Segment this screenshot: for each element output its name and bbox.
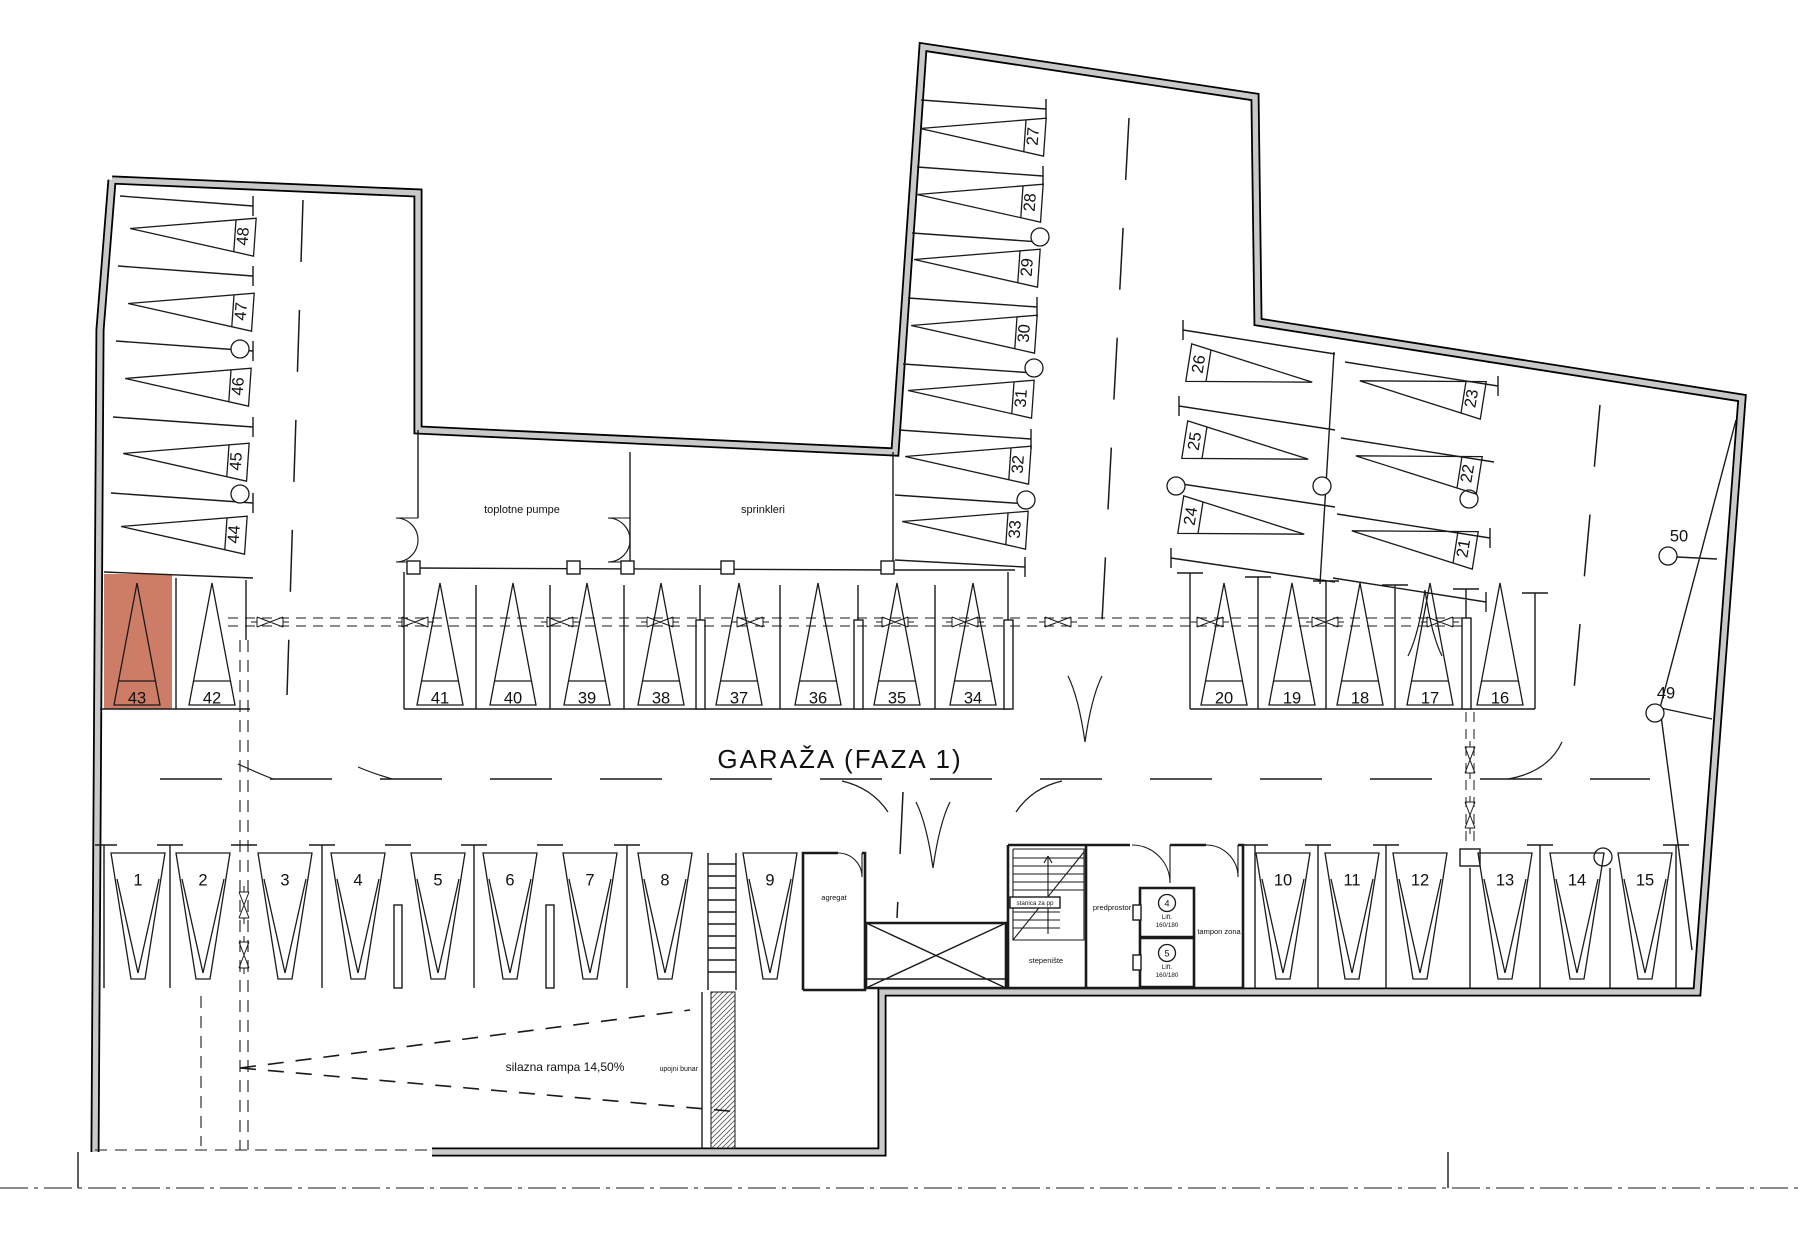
parking-space-36: 36 <box>795 583 841 707</box>
soak-well-strip <box>711 992 735 1148</box>
parking-space-14: 14 <box>1550 853 1604 979</box>
room-label-tampon-zona: tampon zona <box>1197 927 1241 936</box>
parking-space-6: 6 <box>483 853 537 979</box>
parking-space-13: 13 <box>1478 853 1532 979</box>
space-number: 21 <box>1453 538 1474 559</box>
space-number: 2 <box>198 871 207 889</box>
exterior-wall-outline <box>95 47 1742 1152</box>
parking-space-22: 22 <box>1353 437 1482 494</box>
parking-space-2: 2 <box>176 853 230 979</box>
room-label-stepeniste: stepenište <box>1029 956 1063 965</box>
space-number: 45 <box>227 452 246 472</box>
space-number: 29 <box>1018 258 1037 278</box>
parking-space-26: 26 <box>1186 344 1315 401</box>
lift-4-label: Lift. <box>1162 914 1172 921</box>
space-number: 49 <box>1657 684 1675 702</box>
parking-space-31: 31 <box>907 372 1034 419</box>
stair-treads <box>1013 849 1084 940</box>
room-label-sprinkleri: sprinkleri <box>741 504 785 516</box>
parking-space-20: 20 <box>1201 583 1247 707</box>
parking-space-30: 30 <box>910 307 1037 354</box>
parking-space-5: 5 <box>411 853 465 979</box>
space-number: 37 <box>730 689 748 707</box>
lift-5-number: 5 <box>1164 949 1169 959</box>
space-number: 43 <box>128 689 146 707</box>
space-number: 11 <box>1343 871 1360 889</box>
space-number: 27 <box>1024 127 1043 147</box>
parking-space-33: 33 <box>901 503 1028 550</box>
parking-space-25: 25 <box>1182 421 1311 478</box>
entrance-gate-x <box>866 923 1006 988</box>
space-number: 5 <box>433 871 442 889</box>
space-number: 38 <box>652 689 670 707</box>
parking-space-44: 44 <box>120 508 247 555</box>
space-number: 7 <box>585 871 594 889</box>
space-number: 40 <box>504 689 522 707</box>
plan-title: GARAŽA (FAZA 1) <box>717 744 962 774</box>
parking-space-34: 34 <box>950 583 996 707</box>
drive-aisle-centerlines <box>160 118 1650 918</box>
lift-5-size: 160/180 <box>1156 972 1179 979</box>
parking-space-27: 27 <box>919 110 1046 157</box>
space-number: 42 <box>203 689 221 707</box>
parking-space-35: 35 <box>874 583 920 707</box>
stair-lift-core-walls <box>803 845 1243 990</box>
space-number: 30 <box>1015 324 1034 344</box>
space-number: 20 <box>1215 689 1233 707</box>
space-number: 25 <box>1185 431 1206 452</box>
parking-space-3: 3 <box>258 853 312 979</box>
room-label-toplotne-pumpe: toplotne pumpe <box>484 504 560 516</box>
space-number: 3 <box>280 871 289 889</box>
parking-space-38: 38 <box>638 583 684 707</box>
parking-space-32: 32 <box>904 438 1031 485</box>
space-number: 50 <box>1670 527 1688 545</box>
space-number: 12 <box>1411 871 1429 889</box>
parking-space-24: 24 <box>1178 496 1307 553</box>
parking-space-1: 1 <box>111 853 165 979</box>
lift-4-number: 4 <box>1164 899 1169 909</box>
garage-floor-plan: 1234567891011121314151617181920212223242… <box>0 0 1800 1257</box>
parking-space-46: 46 <box>124 360 251 407</box>
space-number: 31 <box>1012 389 1031 409</box>
parking-space-11: 11 <box>1325 853 1379 979</box>
parking-space-50: 50 <box>1659 527 1688 565</box>
space-number: 34 <box>964 689 982 707</box>
floor-plan-drawing: 1234567891011121314151617181920212223242… <box>0 0 1800 1257</box>
space-number: 33 <box>1006 520 1025 540</box>
space-number: 22 <box>1457 463 1478 484</box>
space-number: 6 <box>505 871 514 889</box>
parking-space-17: 17 <box>1407 583 1453 707</box>
room-label-agregat: agregat <box>821 893 847 902</box>
space-number: 13 <box>1496 871 1514 889</box>
lift-4-size: 160/180 <box>1156 922 1179 929</box>
space-number: 28 <box>1021 193 1040 213</box>
parking-space-15: 15 <box>1618 853 1672 979</box>
space-number: 23 <box>1461 388 1482 409</box>
parking-space-7: 7 <box>563 853 617 979</box>
room-label-predprostor: predprostor <box>1093 903 1132 912</box>
parking-space-9: 9 <box>743 853 797 979</box>
parking-space-19: 19 <box>1269 583 1315 707</box>
space-number: 15 <box>1636 871 1654 889</box>
parking-space-41: 41 <box>417 583 463 707</box>
ramp-direction-arrow <box>240 1010 740 1112</box>
parking-space-48: 48 <box>129 210 256 257</box>
space-number: 47 <box>232 302 251 322</box>
space-number: 48 <box>234 227 253 247</box>
space-number: 4 <box>353 871 362 889</box>
space-number: 36 <box>809 689 827 707</box>
space-number: 26 <box>1189 354 1210 375</box>
exterior-wall-core <box>95 47 1742 1152</box>
space-number: 44 <box>225 525 244 545</box>
parking-space-23: 23 <box>1357 362 1486 419</box>
space-number: 39 <box>578 689 596 707</box>
parking-space-40: 40 <box>490 583 536 707</box>
space-number: 17 <box>1421 689 1439 707</box>
lift-5-label: Lift. <box>1162 964 1172 971</box>
space-number: 10 <box>1274 871 1292 889</box>
space-number: 24 <box>1181 506 1202 527</box>
ramp-label: silazna rampa 14,50% <box>506 1060 625 1074</box>
parking-space-12: 12 <box>1393 853 1447 979</box>
parking-space-39: 39 <box>564 583 610 707</box>
parking-space-8: 8 <box>638 853 692 979</box>
space-number: 41 <box>431 689 449 707</box>
space-number: 35 <box>888 689 906 707</box>
parking-space-42: 42 <box>189 583 235 707</box>
space-number: 16 <box>1491 689 1509 707</box>
space-number: 18 <box>1351 689 1369 707</box>
space-number: 19 <box>1283 689 1301 707</box>
soak-well-label: upojni bunar <box>659 1066 698 1073</box>
space-number: 8 <box>660 871 669 889</box>
parking-space-21: 21 <box>1349 512 1478 569</box>
lane-junction-marks <box>238 590 1562 868</box>
space-number: 9 <box>765 871 774 889</box>
parking-space-4: 4 <box>331 853 385 979</box>
parking-space-10: 10 <box>1256 853 1310 979</box>
parking-space-45: 45 <box>122 435 249 482</box>
parking-space-29: 29 <box>913 241 1040 288</box>
stair-box-label: stanica za pp <box>1016 900 1054 907</box>
space-number: 14 <box>1568 871 1586 889</box>
space-number: 32 <box>1009 455 1028 475</box>
parking-space-47: 47 <box>127 285 254 332</box>
parking-space-18: 18 <box>1337 583 1383 707</box>
drain-channel <box>228 618 1474 848</box>
expansion-joints <box>95 640 430 1150</box>
parking-space-28: 28 <box>916 176 1043 223</box>
parking-space-37: 37 <box>716 583 762 707</box>
space-number: 1 <box>133 871 142 889</box>
space-number: 46 <box>229 377 248 397</box>
